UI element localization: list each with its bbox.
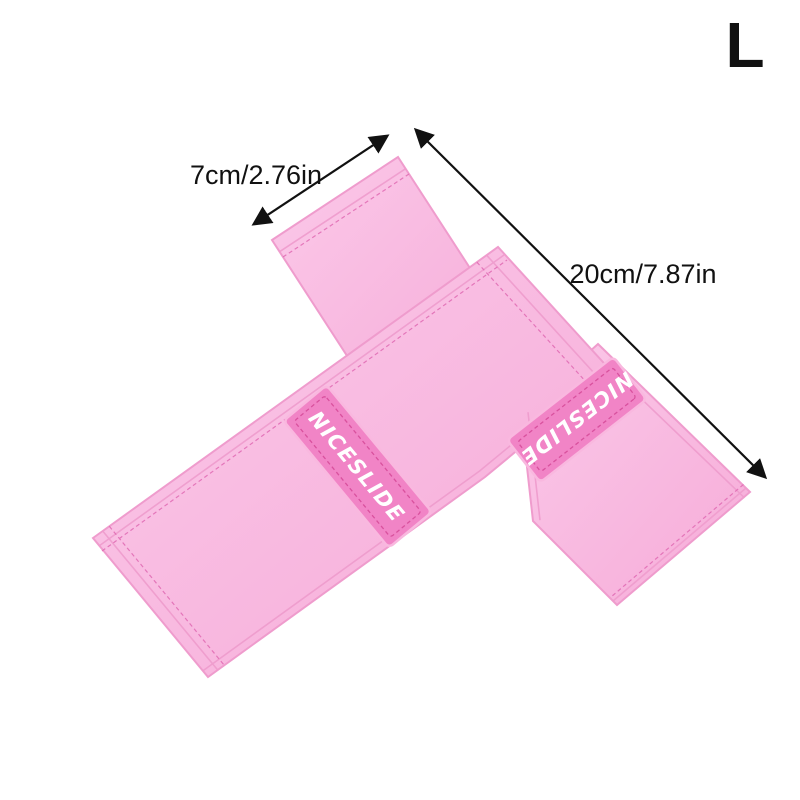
product-illustration: NICESLIDE NICESLIDE 7cm/2.76in 20cm/7.87… xyxy=(0,0,800,800)
size-label: L xyxy=(725,9,764,81)
label-width: 7cm/2.76in xyxy=(190,160,322,190)
label-length: 20cm/7.87in xyxy=(569,259,716,289)
product-photo: NICESLIDE NICESLIDE 7cm/2.76in 20cm/7.87… xyxy=(0,0,800,800)
